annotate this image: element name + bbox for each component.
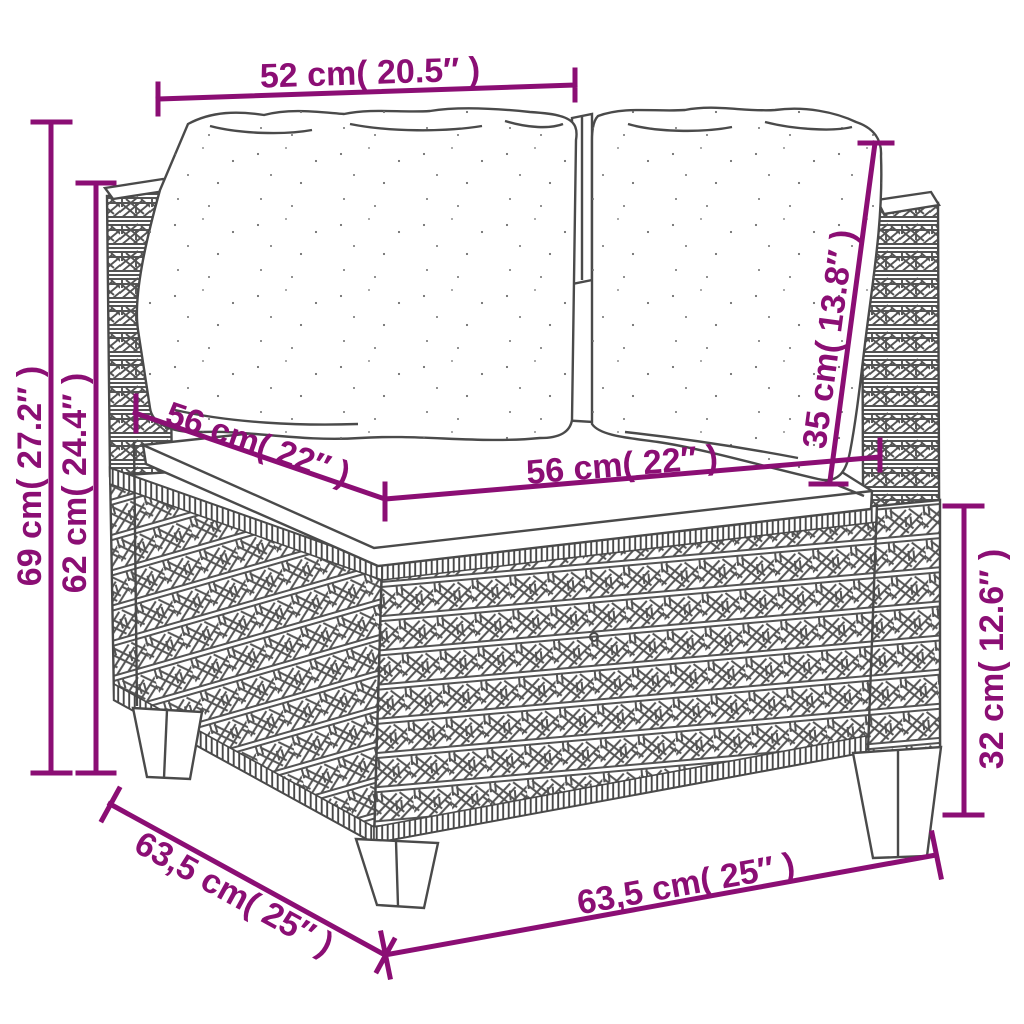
svg-text:52 cm( 20.5″ ): 52 cm( 20.5″ ) [259, 50, 481, 95]
svg-text:63,5 cm( 25″ ): 63,5 cm( 25″ ) [574, 846, 798, 923]
svg-text:69 cm( 27.2″ ): 69 cm( 27.2″ ) [11, 366, 49, 586]
svg-text:62 cm( 24.4″ ): 62 cm( 24.4″ ) [56, 373, 94, 593]
svg-text:32 cm( 12.6″ ): 32 cm( 12.6″ ) [973, 549, 1011, 769]
svg-text:63,5 cm( 25″ ): 63,5 cm( 25″ ) [128, 824, 339, 963]
